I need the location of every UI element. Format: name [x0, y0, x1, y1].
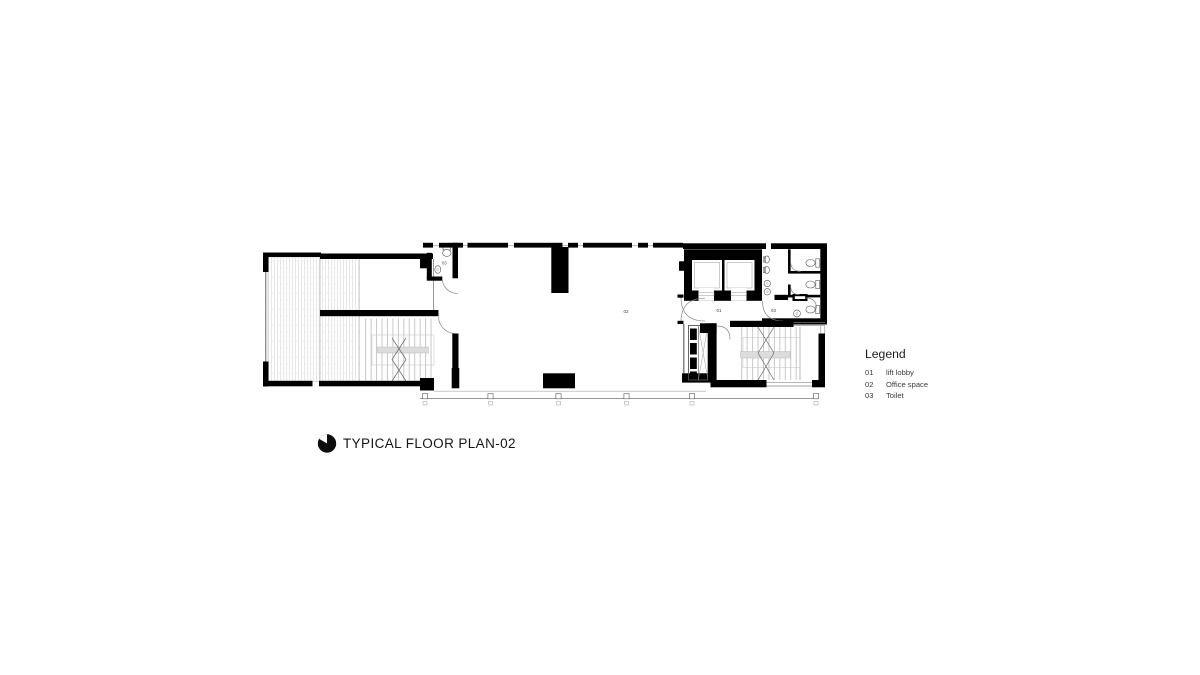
office-area: 02	[420, 247, 711, 391]
legend-title: Legend	[865, 347, 928, 361]
balcony-edge	[420, 391, 819, 405]
left-staircase	[365, 317, 459, 386]
facade-posts	[422, 394, 818, 399]
legend-code: 03	[865, 390, 886, 402]
legend-rows: 01 lift lobby 02 Office space 03 Toilet	[865, 367, 928, 402]
right-staircase	[711, 321, 826, 388]
basin-fixture	[435, 266, 441, 274]
legend-row: 03 Toilet	[865, 390, 928, 402]
toilet-right-label: 03	[771, 308, 776, 313]
toilet-block-right: 03	[762, 245, 827, 325]
lift-lobby-area: 01	[678, 295, 723, 381]
legend-panel: Legend 01 lift lobby 02 Office space 03 …	[865, 347, 928, 402]
toilet-small-left: 03	[420, 243, 458, 294]
plan-title-icon	[317, 433, 339, 455]
page: { "drawing": { "title": "TYPICAL FLOOR P…	[0, 0, 1200, 675]
lift-shaft	[679, 249, 762, 300]
office-label: 02	[624, 309, 630, 314]
drawing-sheet: 03 02	[0, 0, 1200, 675]
legend-row: 01 lift lobby	[865, 367, 928, 379]
legend-code: 01	[865, 367, 886, 379]
legend-code: 02	[865, 379, 886, 391]
wc-fixture	[816, 259, 820, 267]
basin-fixture	[764, 280, 770, 286]
legend-row: 02 Office space	[865, 379, 928, 391]
legend-label: Office space	[886, 379, 928, 391]
lift-lobby-label: 01	[717, 308, 723, 313]
building-top-wall	[423, 243, 827, 249]
plan-title: TYPICAL FLOOR PLAN-02	[343, 436, 516, 451]
legend-label: Toilet	[886, 390, 904, 402]
legend-label: lift lobby	[886, 367, 914, 379]
toilet-left-label: 03	[442, 261, 447, 266]
floor-plan: 03 02	[258, 235, 838, 410]
